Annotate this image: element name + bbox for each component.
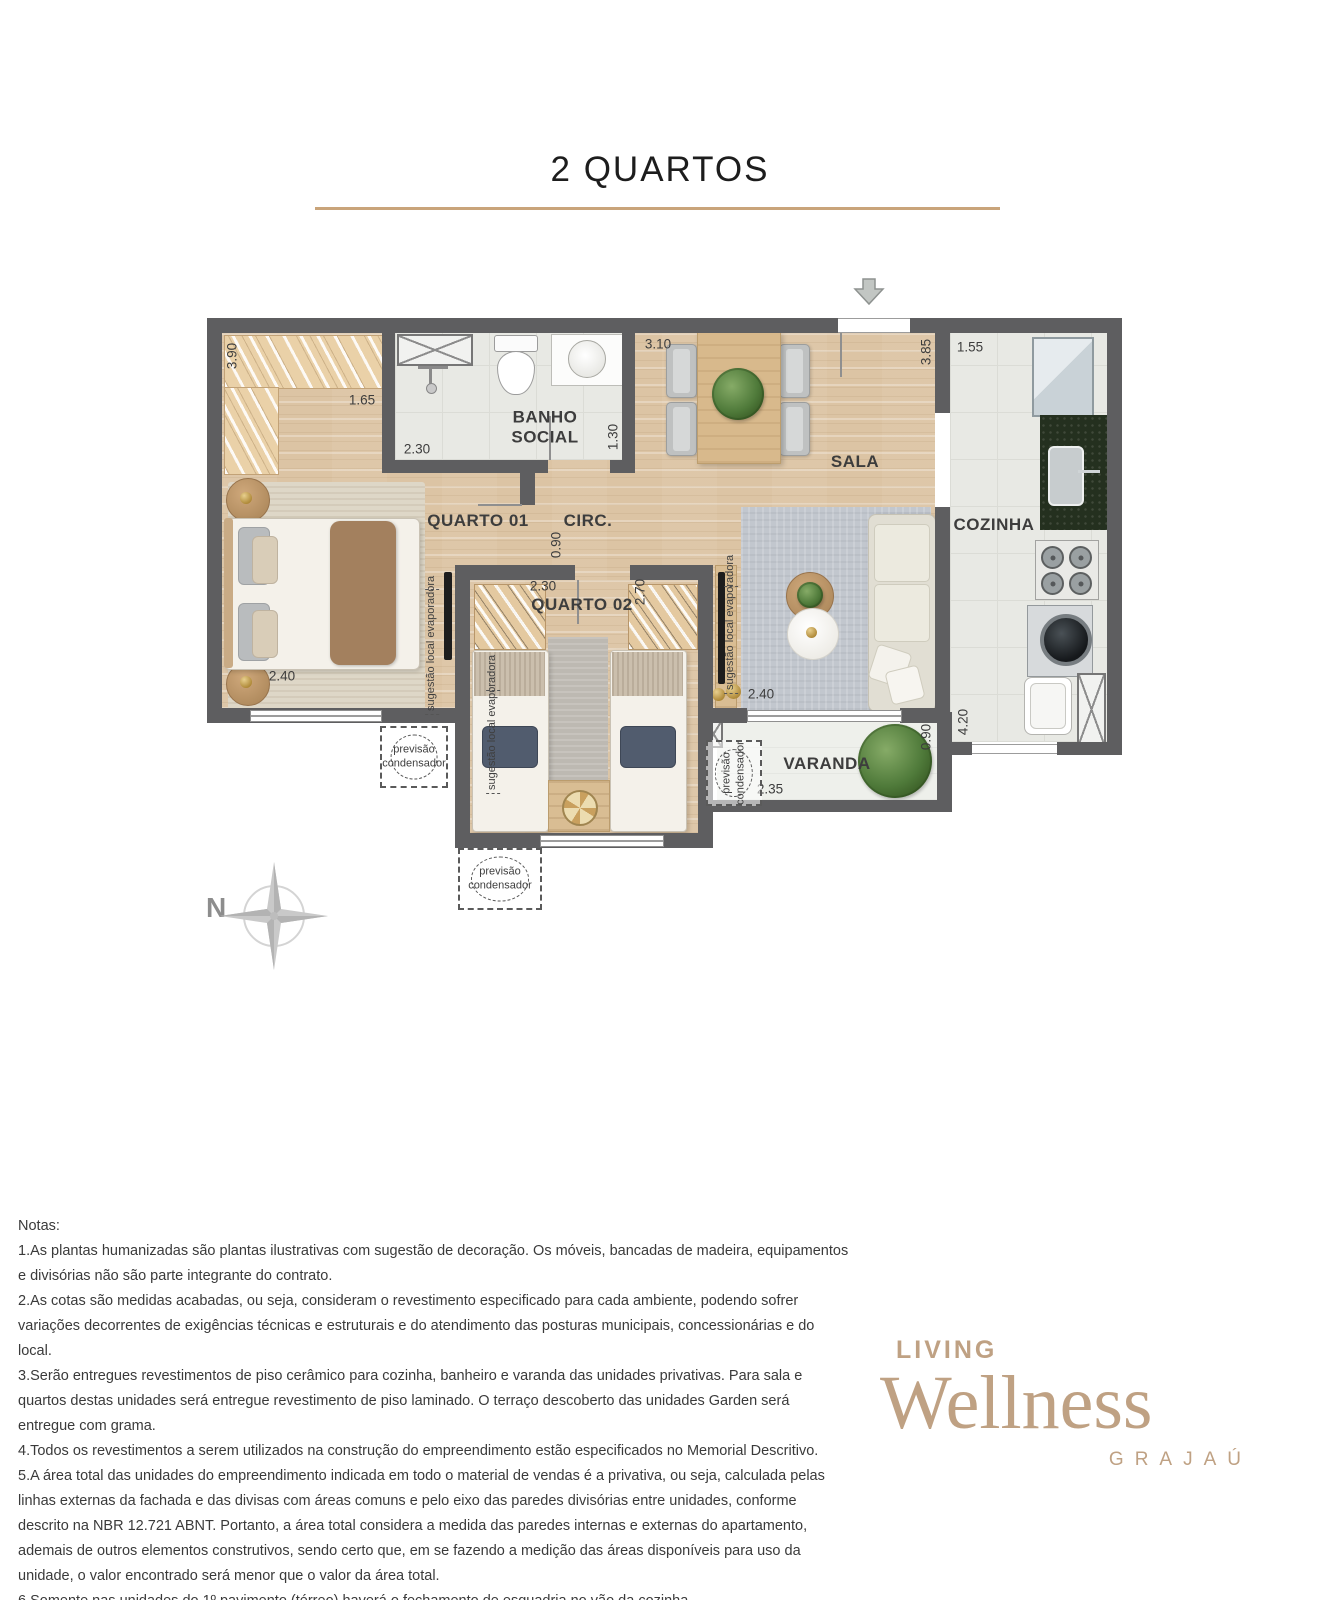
note-item: 6.Somente nas unidades do 1º pavimento (… (18, 1589, 850, 1600)
room-label-quarto02: QUARTO 02 (531, 595, 633, 615)
room-label-sala: SALA (831, 452, 879, 472)
wall (937, 742, 972, 755)
dim-quarto01-depth: 3.90 (225, 343, 240, 369)
dining-chair (779, 344, 810, 398)
lamp-bottom (240, 676, 252, 688)
wall (382, 333, 395, 473)
dim-quarto02-depth: 2.70 (633, 579, 648, 605)
wall (382, 460, 548, 473)
wall (207, 318, 838, 333)
wall (700, 708, 747, 723)
entry-arrow-icon (852, 277, 886, 307)
burner (1069, 572, 1092, 595)
note-item: 4.Todos os revestimentos a serem utiliza… (18, 1439, 850, 1464)
wall (900, 708, 937, 723)
wardrobe-quarto02-left (474, 584, 546, 650)
room-label-circ: CIRC. (564, 511, 613, 531)
room-label-cozinha: COZINHA (954, 515, 1035, 535)
dining-chair (666, 344, 697, 398)
bed-left-woven (474, 652, 545, 696)
condenser-note-varanda: previsão condensador (706, 740, 762, 806)
note-item: 2.As cotas são medidas acabadas, ou seja… (18, 1289, 850, 1364)
dim-banho-width: 2.30 (404, 442, 430, 457)
dim-varanda-depth: 0.90 (919, 724, 934, 750)
shower-icon (418, 366, 448, 369)
dim-sala-rug: 2.40 (748, 687, 774, 702)
cozinha-opening (972, 744, 1057, 754)
bed-right-woven (612, 652, 683, 696)
floor-plan-page: 2 QUARTOS (0, 0, 1320, 1600)
rug-quarto02 (548, 637, 608, 783)
dim-quarto01-closet: 1.65 (349, 393, 375, 408)
dim-quarto01-width: 2.40 (269, 669, 295, 684)
dining-chair (666, 402, 697, 456)
fridge (1032, 337, 1094, 417)
note-item: 5.A área total das unidades do empreendi… (18, 1464, 850, 1589)
pillow-navy (620, 726, 676, 768)
dim-circ-width: 0.90 (549, 532, 564, 558)
compass-rose-icon (216, 860, 328, 972)
window-quarto01 (250, 710, 382, 722)
note-item: 1.As plantas humanizadas são plantas ilu… (18, 1239, 850, 1289)
sofa-cushion (874, 584, 930, 642)
pillow (252, 610, 278, 658)
kitchen-sink (1048, 446, 1084, 506)
closet-quarto01-top (224, 335, 384, 389)
burner (1041, 572, 1064, 595)
condenser-label: previsão condensador (375, 743, 453, 772)
wall (520, 473, 535, 505)
wall (1057, 742, 1122, 755)
laundry-tank (1024, 677, 1072, 735)
room-label-varanda: VARANDA (783, 754, 870, 774)
wall (935, 333, 950, 413)
logo-wellness: Wellness (880, 1365, 1252, 1441)
wall (455, 565, 575, 580)
dining-chair (779, 402, 810, 456)
shower-knob (426, 383, 437, 394)
wall (937, 712, 952, 812)
window-sala-varanda (747, 710, 902, 722)
wall (935, 507, 950, 723)
shaft-box-cozinha (1077, 673, 1106, 746)
condenser-label: previsão condensador (720, 738, 749, 808)
pillow (252, 536, 278, 584)
dim-cozinha-width: 1.55 (957, 340, 983, 355)
dim-banho-depth: 1.30 (606, 424, 621, 450)
table-plant (712, 368, 764, 420)
coffee-table-plant (797, 582, 823, 608)
entry-door-leaf (840, 333, 842, 377)
bath-sink-basin (568, 340, 606, 378)
logo-grajau: GRAJAÚ (880, 1449, 1252, 1471)
kitchen-faucet (1078, 470, 1100, 473)
note-item: 3.Serão entregues revestimentos de piso … (18, 1364, 850, 1439)
dim-quarto02-width: 2.30 (530, 579, 556, 594)
wall (910, 318, 1122, 333)
dim-sala-width: 3.10 (645, 337, 671, 352)
closet-quarto01-left (224, 387, 279, 475)
evaporator-note-quarto01: sugestão local evaporadora (425, 589, 439, 715)
quarto01-door-leaf (478, 504, 522, 506)
page-title: 2 QUARTOS (0, 150, 1320, 190)
room-label-banho: BANHO SOCIAL (502, 407, 588, 446)
wall (622, 333, 635, 473)
sideboard-lamp (712, 688, 725, 701)
decor-dot (806, 627, 817, 638)
burner (1041, 546, 1064, 569)
dim-cozinha-depth: 4.20 (956, 709, 971, 735)
condenser-note-quarto02: previsão condensador (458, 848, 542, 910)
shaft-box-banho (397, 334, 473, 366)
dim-sala-depth: 3.85 (919, 339, 934, 365)
wall (455, 565, 470, 848)
washer-door (1040, 614, 1092, 666)
evaporator-note-quarto02: sugestão local evaporadora (486, 690, 500, 794)
notes-section: Notas: 1.As plantas humanizadas são plan… (18, 1214, 850, 1600)
window-quarto02 (540, 835, 664, 847)
toilet (494, 335, 538, 352)
burner (1069, 546, 1092, 569)
bed-throw (330, 521, 396, 665)
sofa-cushion (874, 524, 930, 582)
entry-door-opening (838, 318, 910, 333)
wall (207, 318, 222, 723)
headboard (224, 518, 233, 668)
tv-quarto01 (444, 572, 452, 660)
room-label-quarto01: QUARTO 01 (427, 511, 529, 531)
evaporator-note-sala: sugestão local evaporadora (724, 586, 738, 694)
condenser-note-quarto01: previsão condensador (380, 726, 448, 788)
fan-icon (562, 790, 598, 826)
condenser-label: previsão condensador (458, 865, 542, 894)
lamp-top (240, 492, 252, 504)
brand-logo: LIVING Wellness GRAJAÚ (880, 1336, 1252, 1471)
wall (1107, 318, 1122, 755)
title-underline (315, 207, 1000, 210)
notes-heading: Notas: (18, 1214, 850, 1239)
